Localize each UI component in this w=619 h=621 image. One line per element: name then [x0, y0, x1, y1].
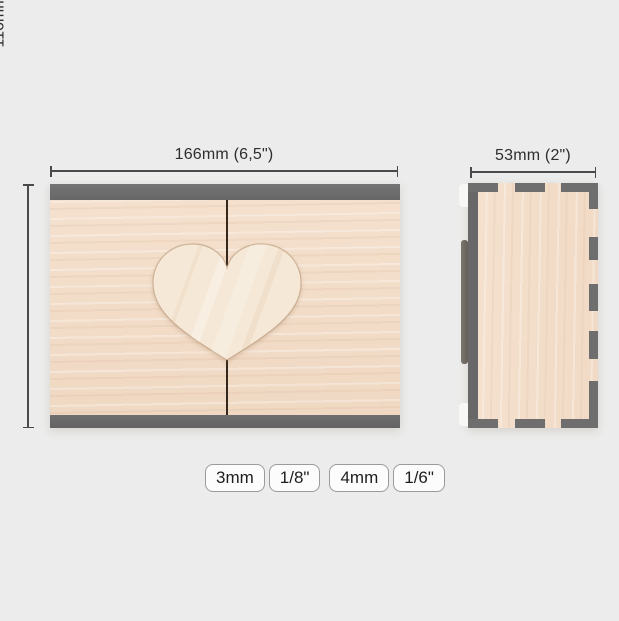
finger-joint-border	[468, 183, 598, 428]
bottom-edge-band	[50, 415, 400, 428]
dimension-tick	[50, 166, 52, 177]
product-dimension-diagram: 166mm (6,5") 53mm (2") 116mm (4,5")	[0, 0, 619, 621]
dimension-tick	[397, 166, 399, 177]
heart-icon	[145, 242, 309, 362]
dimension-tick	[595, 167, 597, 178]
dimension-tick	[470, 167, 472, 178]
front-view-board	[50, 184, 400, 428]
dimension-tick	[23, 184, 34, 186]
center-seam-lower	[226, 360, 228, 415]
thickness-badge-1-6in: 1/6"	[393, 464, 445, 492]
dimension-tick	[23, 427, 34, 429]
divider-tab	[461, 240, 468, 364]
thickness-badge-3mm: 3mm	[205, 464, 265, 492]
front-height-dimension-text: 116mm (4,5")	[0, 0, 9, 48]
thickness-badges: 3mm 1/8" 4mm 1/6"	[205, 464, 445, 492]
front-width-dimension-line	[50, 170, 398, 172]
thickness-badge-4mm: 4mm	[329, 464, 389, 492]
side-view-board	[468, 183, 598, 428]
front-width-dimension-label: 166mm (6,5")	[50, 146, 398, 164]
side-depth-dimension-line	[470, 171, 596, 173]
thickness-badge-1-8in: 1/8"	[269, 464, 321, 492]
top-edge-band	[50, 184, 400, 200]
side-depth-dimension-label: 53mm (2")	[470, 147, 596, 165]
front-height-dimension-line	[27, 184, 29, 428]
